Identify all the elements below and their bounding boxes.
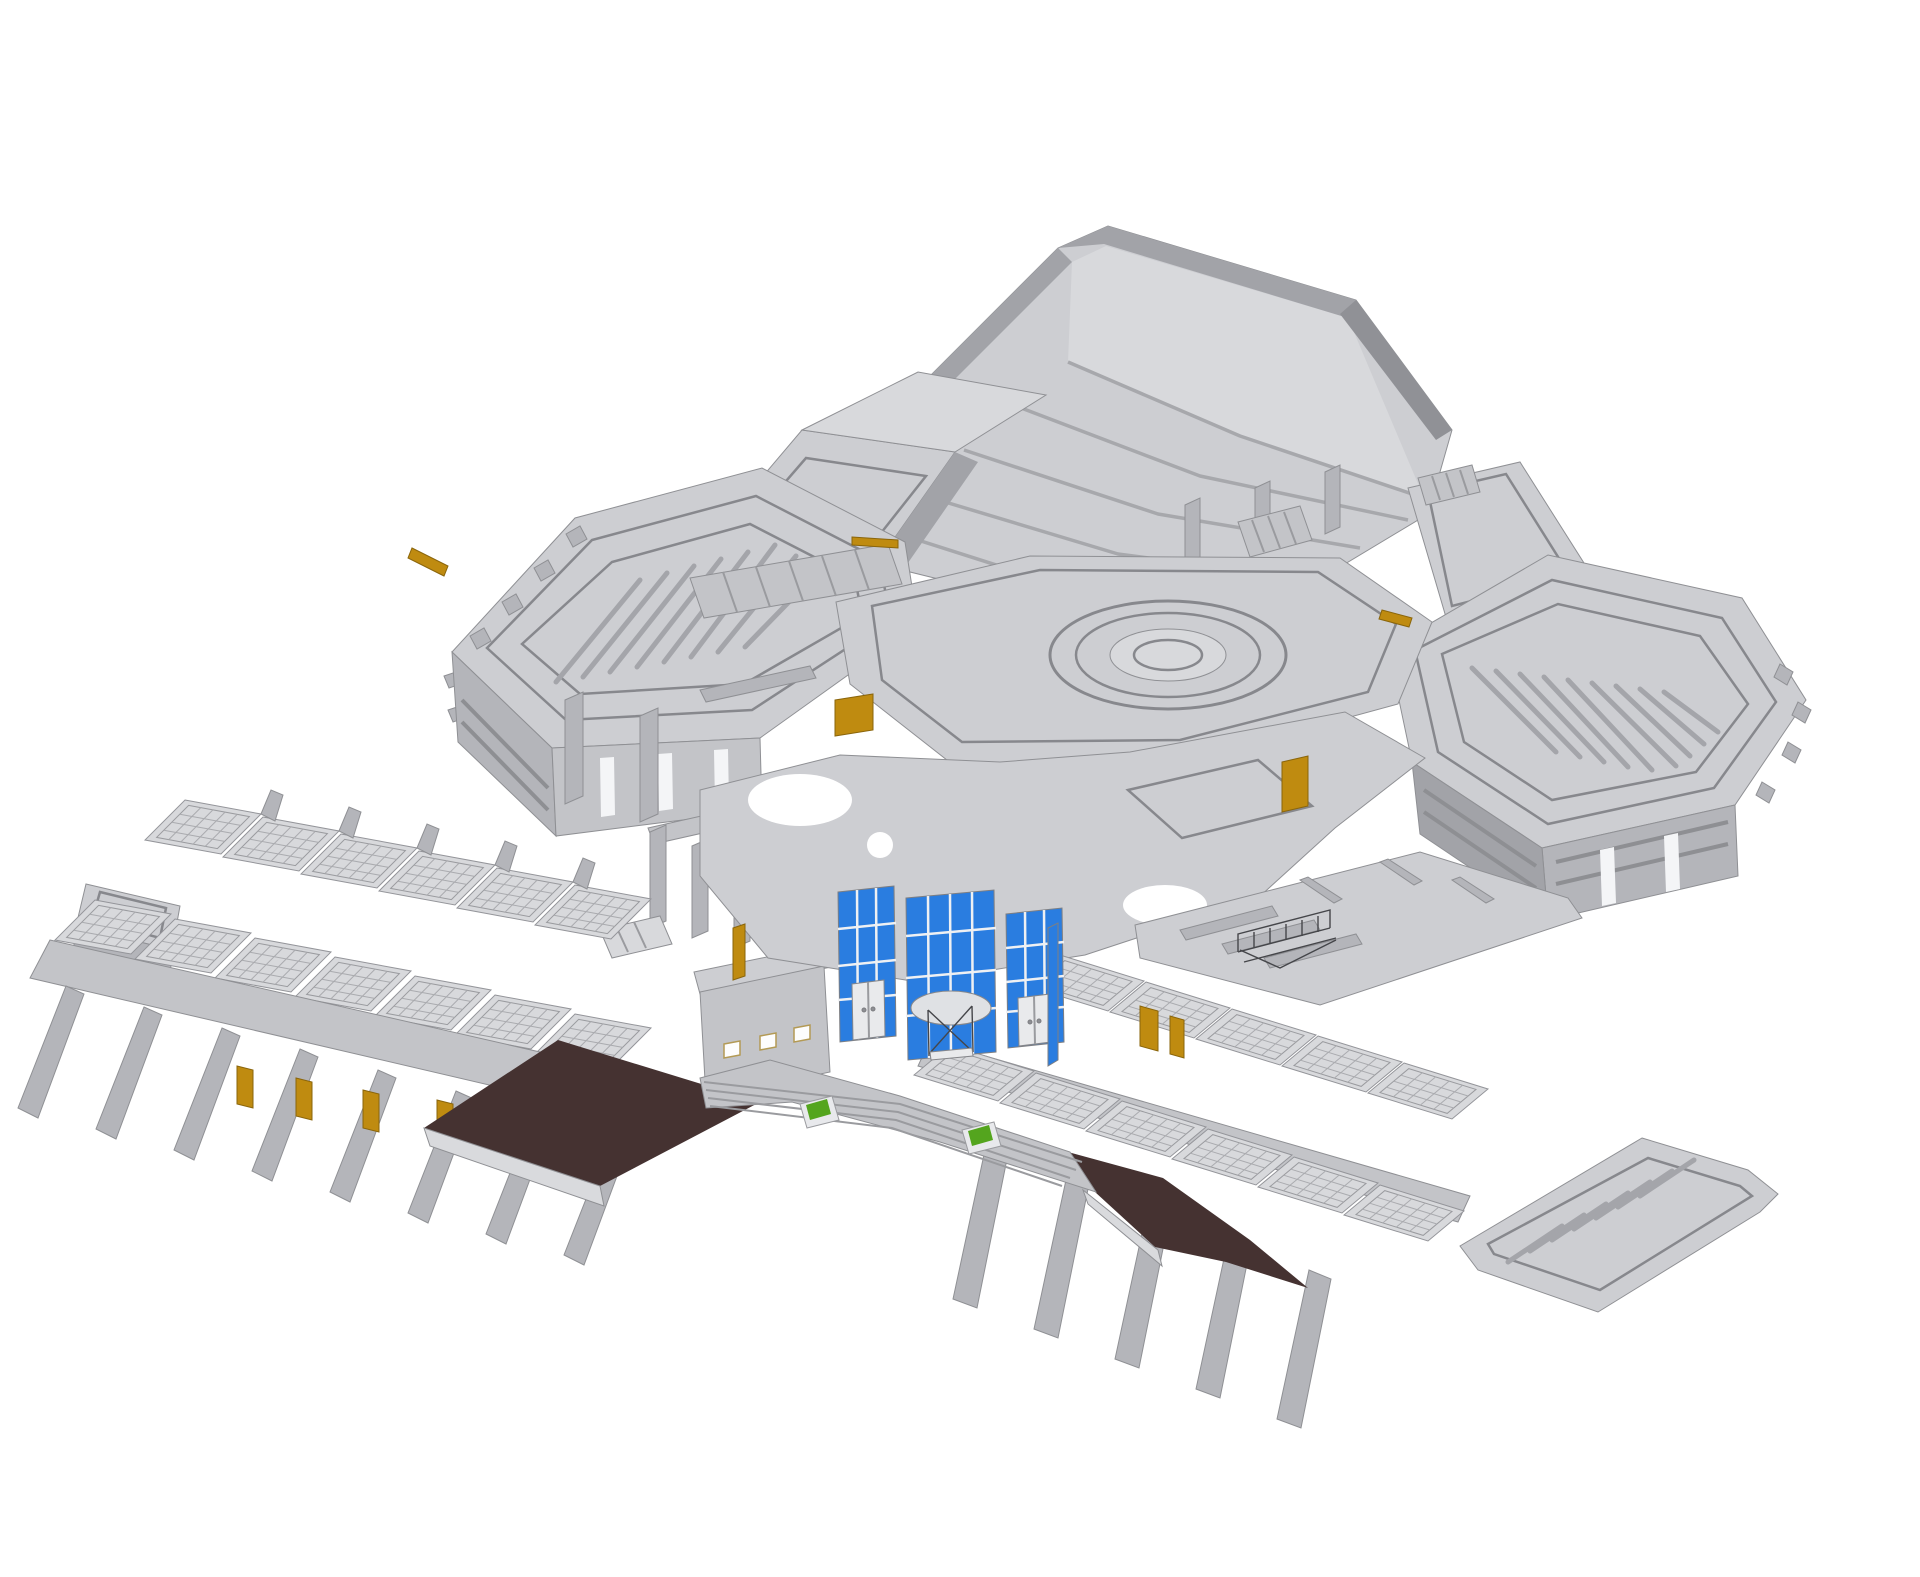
right-approach-ramp [1068, 1152, 1308, 1288]
bim-3d-view[interactable] [0, 0, 1920, 1577]
glass-side-sliver [1048, 923, 1058, 1066]
right-wing-deck [1460, 1138, 1778, 1312]
left-wing-door-1 [237, 1066, 253, 1108]
left-classroom-wing [18, 790, 651, 1265]
right-wing-door-2 [1170, 1016, 1184, 1058]
door-hex-south [835, 694, 873, 736]
entry-walkway [424, 1040, 1308, 1288]
door-strip-west [408, 548, 448, 576]
model-viewport[interactable] [0, 0, 1920, 1577]
right-wing-door-1 [1140, 1006, 1158, 1051]
plaza-cutout-west [748, 774, 852, 826]
door-mid-link [733, 924, 745, 980]
left-wing-door-2 [296, 1078, 312, 1120]
door-east-link [1282, 756, 1308, 812]
approach-ramps [424, 1040, 1308, 1288]
entrance-curtain-wall [838, 886, 1064, 1066]
left-wing-door-3 [363, 1090, 379, 1132]
